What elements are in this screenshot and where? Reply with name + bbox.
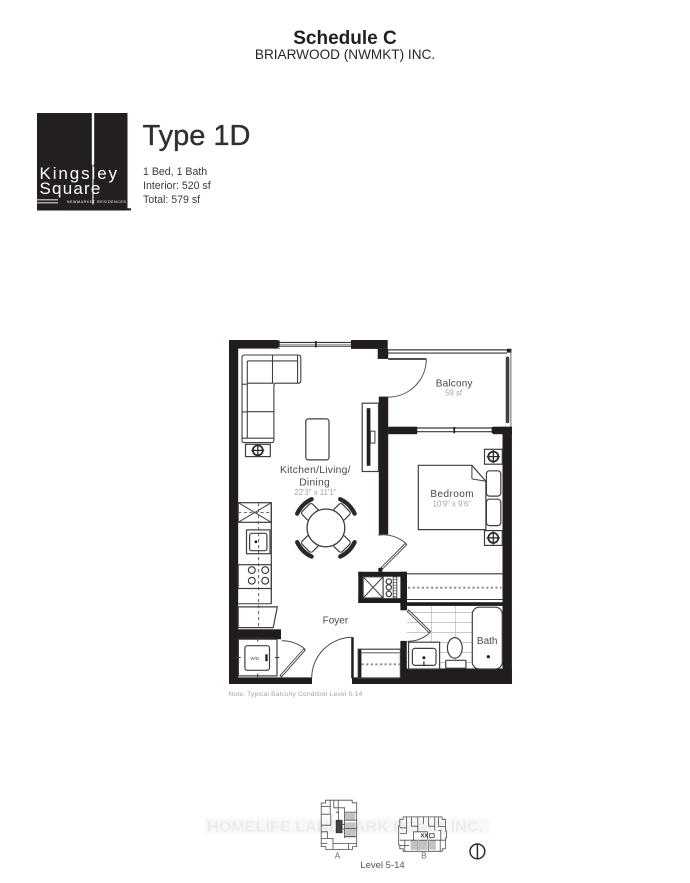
svg-text:Schedule C: Schedule C xyxy=(293,28,397,49)
svg-text:A: A xyxy=(335,851,341,861)
svg-text:Level 5-14: Level 5-14 xyxy=(360,860,404,871)
svg-text:Total: 579 sf: Total: 579 sf xyxy=(143,194,200,206)
svg-text:22'3" x 11'1": 22'3" x 11'1" xyxy=(294,488,336,497)
svg-text:NEWMARKET RESIDENCES: NEWMARKET RESIDENCES xyxy=(67,200,127,204)
svg-text:Dining: Dining xyxy=(299,478,330,489)
svg-text:Type 1D: Type 1D xyxy=(143,120,251,152)
svg-text:Foyer: Foyer xyxy=(323,616,349,627)
svg-text:10'9" x 9'6": 10'9" x 9'6" xyxy=(433,500,472,509)
svg-text:59 sf: 59 sf xyxy=(445,389,463,398)
svg-text:B: B xyxy=(421,851,427,861)
svg-text:Bath: Bath xyxy=(477,636,498,647)
svg-text:Interior: 520 sf: Interior: 520 sf xyxy=(143,180,211,192)
svg-text:1 Bed, 1 Bath: 1 Bed, 1 Bath xyxy=(143,166,207,178)
svg-text:W/D: W/D xyxy=(250,656,259,661)
svg-text:Square: Square xyxy=(40,179,102,198)
svg-text:BRIARWOOD (NWMKT) INC.: BRIARWOOD (NWMKT) INC. xyxy=(255,47,435,62)
svg-text:XX: XX xyxy=(421,834,429,840)
svg-text:Note: Typical Balcony Conditio: Note: Typical Balcony Condition Level 5-… xyxy=(229,691,363,698)
svg-text:Kitchen/Living/: Kitchen/Living/ xyxy=(280,465,351,476)
